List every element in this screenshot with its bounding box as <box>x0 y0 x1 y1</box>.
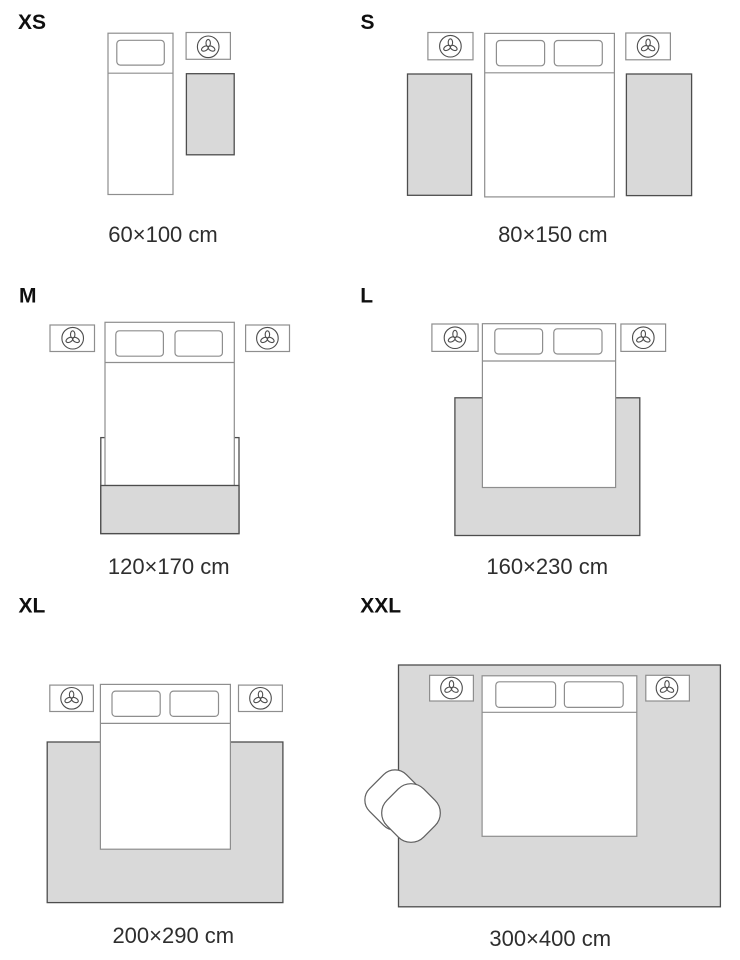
svg-text:200×290 cm: 200×290 cm <box>112 923 234 948</box>
svg-text:120×170 cm: 120×170 cm <box>108 554 230 579</box>
svg-text:L: L <box>360 285 373 308</box>
svg-text:XXL: XXL <box>360 595 401 618</box>
svg-text:XL: XL <box>19 595 46 618</box>
svg-text:300×400 cm: 300×400 cm <box>489 926 611 951</box>
svg-text:60×100 cm: 60×100 cm <box>108 222 217 247</box>
svg-text:S: S <box>361 11 375 34</box>
svg-text:M: M <box>19 285 37 308</box>
svg-text:XS: XS <box>18 11 46 34</box>
svg-text:80×150 cm: 80×150 cm <box>498 222 607 247</box>
svg-text:160×230 cm: 160×230 cm <box>486 554 608 579</box>
